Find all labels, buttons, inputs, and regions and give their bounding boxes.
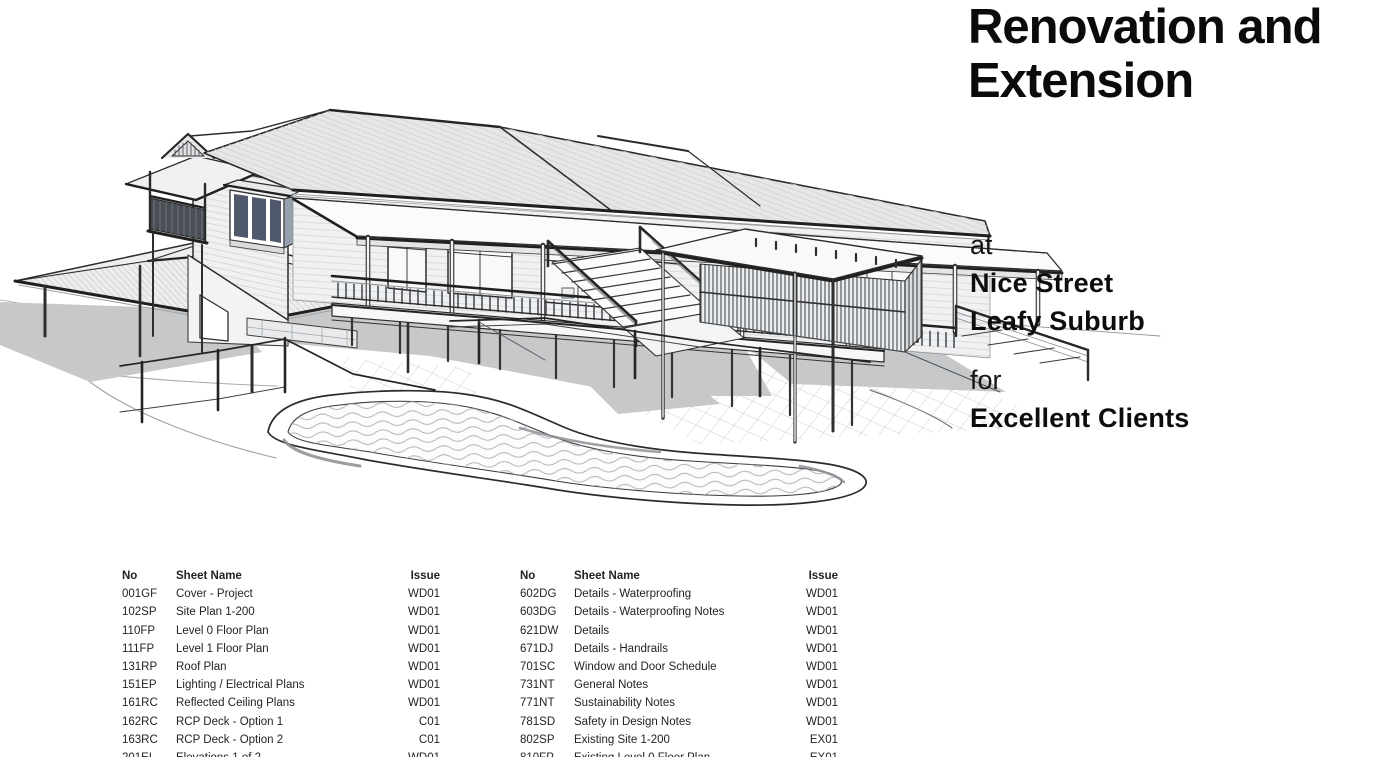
sheet-number: 201EL: [122, 749, 176, 757]
sheet-row: 161RC Reflected Ceiling Plans WD01: [122, 694, 440, 712]
sheet-number: 781SD: [520, 713, 574, 731]
sheet-row: 810FP Existing Level 0 Floor Plan EX01: [520, 749, 838, 757]
sheet-issue: WD01: [776, 640, 838, 658]
sheet-name: Level 1 Floor Plan: [176, 640, 378, 658]
col-sheet-name: Sheet Name: [176, 567, 378, 585]
sheet-number: 771NT: [520, 694, 574, 712]
sheet-number: 161RC: [122, 694, 176, 712]
sheet-issue: EX01: [776, 731, 838, 749]
sheet-name: RCP Deck - Option 2: [176, 731, 378, 749]
sheet-row: 701SC Window and Door Schedule WD01: [520, 658, 838, 676]
sheet-name: Elevations 1 of 2: [176, 749, 378, 757]
sheet-issue: WD01: [776, 585, 838, 603]
sheet-number: 671DJ: [520, 640, 574, 658]
bay-window: [224, 180, 302, 254]
sheet-name: Site Plan 1-200: [176, 603, 378, 621]
sheet-row: 602DG Details - Waterproofing WD01: [520, 585, 838, 603]
sheet-number: 151EP: [122, 676, 176, 694]
sheet-issue: WD01: [378, 658, 440, 676]
sheet-issue: WD01: [378, 640, 440, 658]
sheet-index-right: No Sheet Name Issue 602DG Details - Wate…: [520, 567, 838, 757]
sheet-number: 102SP: [122, 603, 176, 621]
sheet-name: General Notes: [574, 676, 776, 694]
sheet-row: 131RP Roof Plan WD01: [122, 658, 440, 676]
sheet-number: 602DG: [520, 585, 574, 603]
client-prefix: for: [970, 361, 1189, 399]
cover-sheet-page: Renovation and Extension at Nice Street …: [0, 0, 1383, 757]
sheet-index-right-body: 602DG Details - Waterproofing WD01 603DG…: [520, 585, 838, 757]
sheet-number: 163RC: [122, 731, 176, 749]
sheet-name: Details - Waterproofing: [574, 585, 776, 603]
sheet-name: Details: [574, 622, 776, 640]
sheet-row: 603DG Details - Waterproofing Notes WD01: [520, 603, 838, 621]
sheet-number: 701SC: [520, 658, 574, 676]
sheet-row: 102SP Site Plan 1-200 WD01: [122, 603, 440, 621]
sheet-row: 001GF Cover - Project WD01: [122, 585, 440, 603]
sheet-name: RCP Deck - Option 1: [176, 713, 378, 731]
sheet-name: Roof Plan: [176, 658, 378, 676]
sheet-number: 162RC: [122, 713, 176, 731]
sheet-issue: WD01: [776, 676, 838, 694]
address-line-2: Leafy Suburb: [970, 302, 1145, 340]
sheet-number: 731NT: [520, 676, 574, 694]
col-issue: Issue: [378, 567, 440, 585]
sheet-issue: WD01: [776, 713, 838, 731]
sheet-issue: WD01: [776, 658, 838, 676]
sheet-index-left: No Sheet Name Issue 001GF Cover - Projec…: [122, 567, 440, 757]
sheet-row: 621DW Details WD01: [520, 622, 838, 640]
sheet-number: 621DW: [520, 622, 574, 640]
sheet-number: 131RP: [122, 658, 176, 676]
sheet-issue: C01: [378, 731, 440, 749]
title-block: Renovation and Extension: [968, 0, 1378, 108]
sheet-index-header: No Sheet Name Issue: [520, 567, 838, 585]
sheet-issue: WD01: [378, 676, 440, 694]
client-name: Excellent Clients: [970, 399, 1189, 437]
project-title: Renovation and Extension: [968, 0, 1378, 108]
sheet-issue: WD01: [378, 585, 440, 603]
sheet-issue: WD01: [776, 694, 838, 712]
sheet-name: Existing Level 0 Floor Plan: [574, 749, 776, 757]
sheet-issue: WD01: [776, 603, 838, 621]
col-no: No: [520, 567, 574, 585]
sheet-row: 151EP Lighting / Electrical Plans WD01: [122, 676, 440, 694]
col-sheet-name: Sheet Name: [574, 567, 776, 585]
sheet-issue: WD01: [378, 749, 440, 757]
sheet-issue: EX01: [776, 749, 838, 757]
sheet-row: 781SD Safety in Design Notes WD01: [520, 713, 838, 731]
sheet-name: Lighting / Electrical Plans: [176, 676, 378, 694]
sheet-name: Details - Handrails: [574, 640, 776, 658]
sheet-number: 603DG: [520, 603, 574, 621]
sheet-issue: WD01: [378, 622, 440, 640]
sheet-index-header: No Sheet Name Issue: [122, 567, 440, 585]
sheet-name: Level 0 Floor Plan: [176, 622, 378, 640]
sheet-name: Details - Waterproofing Notes: [574, 603, 776, 621]
col-no: No: [122, 567, 176, 585]
sheet-row: 771NT Sustainability Notes WD01: [520, 694, 838, 712]
sheet-row: 671DJ Details - Handrails WD01: [520, 640, 838, 658]
sheet-row: 162RC RCP Deck - Option 1 C01: [122, 713, 440, 731]
sheet-row: 163RC RCP Deck - Option 2 C01: [122, 731, 440, 749]
sheet-row: 110FP Level 0 Floor Plan WD01: [122, 622, 440, 640]
address-line-1: Nice Street: [970, 264, 1145, 302]
col-issue: Issue: [776, 567, 838, 585]
sheet-row: 111FP Level 1 Floor Plan WD01: [122, 640, 440, 658]
sheet-row: 201EL Elevations 1 of 2 WD01: [122, 749, 440, 757]
sheet-row: 802SP Existing Site 1-200 EX01: [520, 731, 838, 749]
sheet-issue: WD01: [378, 694, 440, 712]
sheet-issue: WD01: [776, 622, 838, 640]
location-block: at Nice Street Leafy Suburb: [970, 226, 1145, 340]
sheet-name: Existing Site 1-200: [574, 731, 776, 749]
sheet-number: 802SP: [520, 731, 574, 749]
sheet-number: 001GF: [122, 585, 176, 603]
sheet-number: 110FP: [122, 622, 176, 640]
sheet-name: Window and Door Schedule: [574, 658, 776, 676]
location-prefix: at: [970, 226, 1145, 264]
sheet-name: Cover - Project: [176, 585, 378, 603]
sheet-name: Reflected Ceiling Plans: [176, 694, 378, 712]
sheet-issue: WD01: [378, 603, 440, 621]
sheet-number: 810FP: [520, 749, 574, 757]
sheet-issue: C01: [378, 713, 440, 731]
sheet-row: 731NT General Notes WD01: [520, 676, 838, 694]
sheet-name: Safety in Design Notes: [574, 713, 776, 731]
client-block: for Excellent Clients: [970, 361, 1189, 437]
sheet-index-left-body: 001GF Cover - Project WD01 102SP Site Pl…: [122, 585, 440, 757]
sheet-number: 111FP: [122, 640, 176, 658]
sheet-name: Sustainability Notes: [574, 694, 776, 712]
